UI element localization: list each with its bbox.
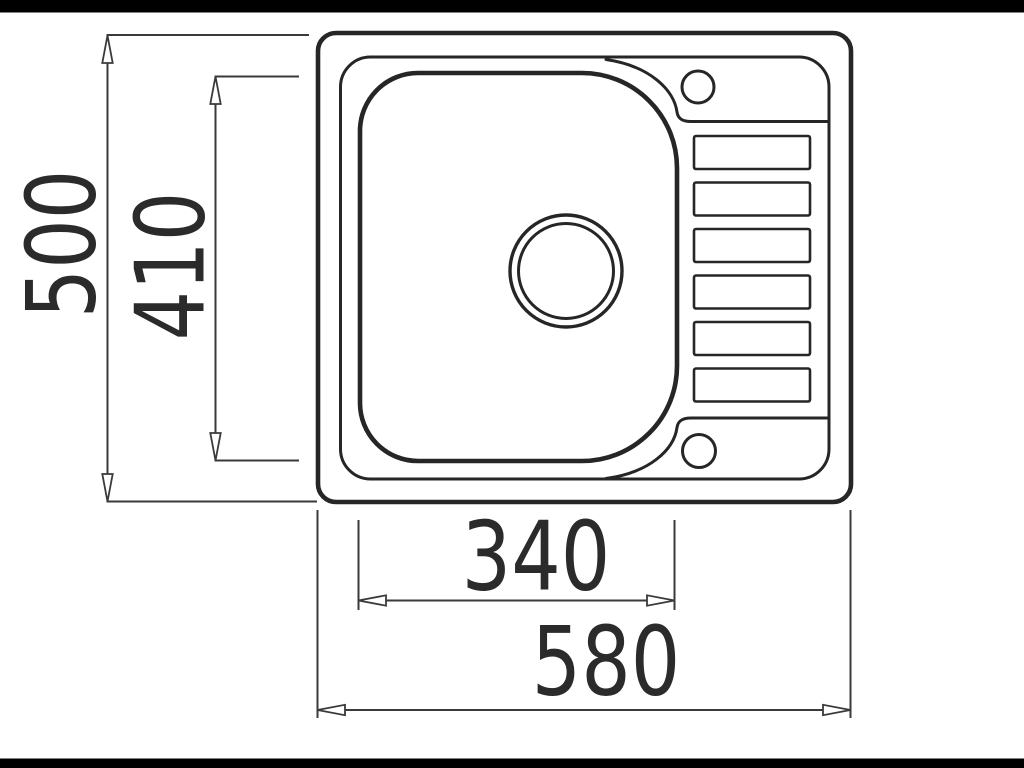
drainer-groove bbox=[694, 369, 810, 402]
drainer-grooves bbox=[694, 136, 810, 402]
waste-drain-outer bbox=[510, 215, 622, 327]
tap-hole bbox=[682, 71, 714, 103]
waste-drain-inner bbox=[519, 224, 614, 319]
deck-bottom-separator bbox=[606, 418, 828, 479]
letterbox-top-bar bbox=[0, 0, 1024, 13]
arrow-up-icon bbox=[102, 36, 112, 64]
drainer-groove bbox=[694, 276, 810, 309]
arrow-left-icon bbox=[318, 705, 346, 715]
dim-label-overall-width: 580 bbox=[532, 607, 681, 717]
arrow-right-icon bbox=[647, 595, 675, 605]
sink-drawing bbox=[318, 33, 851, 502]
drawing-canvas: 500 410 340 580 bbox=[0, 0, 1024, 768]
accessory-hole bbox=[683, 435, 716, 468]
arrow-down-icon bbox=[210, 433, 220, 461]
dim-label-bowl-depth: 410 bbox=[116, 192, 226, 341]
arrow-down-icon bbox=[102, 474, 112, 502]
drainer-groove bbox=[694, 229, 810, 262]
arrow-left-icon bbox=[359, 595, 387, 605]
drainer-groove bbox=[694, 183, 810, 216]
sink-diagram: 500 410 340 580 bbox=[0, 0, 1024, 768]
arrow-right-icon bbox=[823, 705, 851, 715]
sink-outer-rim bbox=[318, 33, 851, 502]
drainer-groove bbox=[694, 136, 810, 169]
arrow-up-icon bbox=[210, 77, 220, 105]
dim-label-overall-depth: 500 bbox=[7, 170, 117, 319]
drainer-groove bbox=[694, 322, 810, 355]
dim-label-bowl-width: 340 bbox=[462, 502, 611, 612]
letterbox-bottom-bar bbox=[0, 759, 1024, 768]
